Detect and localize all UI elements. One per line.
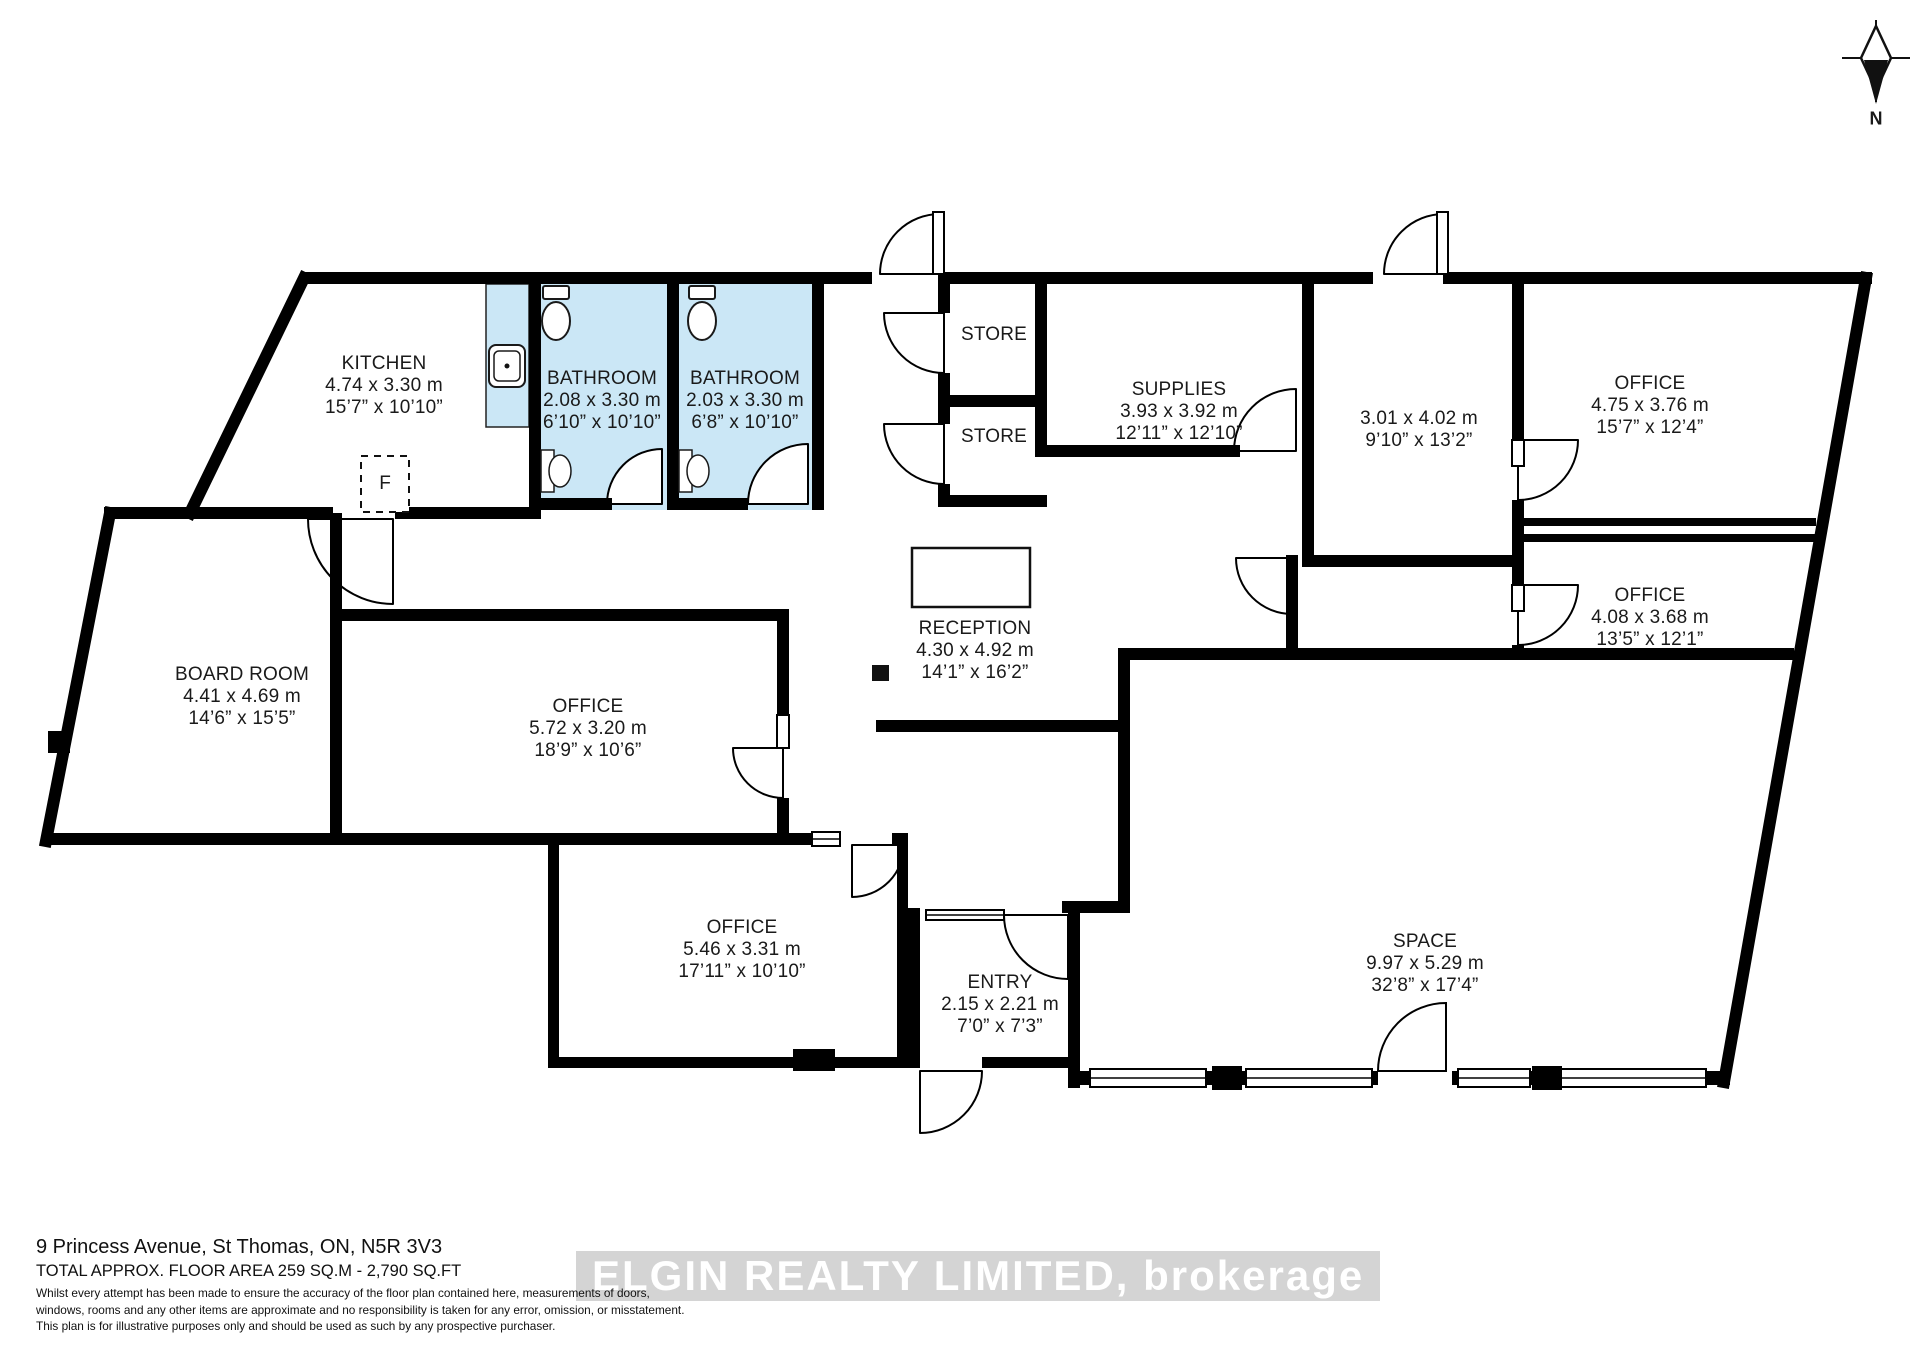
- wall: [1512, 272, 1524, 440]
- door-arc: [920, 1071, 982, 1133]
- room-dims-metric: 3.01 x 4.02 m: [1360, 408, 1478, 430]
- wall: [1724, 278, 1866, 1082]
- door-threshold: [793, 1049, 835, 1071]
- door-arc: [1518, 585, 1578, 645]
- door-arc: [852, 845, 904, 897]
- compass-icon: [1842, 20, 1910, 104]
- room-label-space: SPACE 9.97 x 5.29 m 32’8” x 17’4”: [1366, 931, 1484, 997]
- wall: [1068, 901, 1080, 1088]
- door-arc: [1384, 214, 1444, 274]
- door-arc: [1234, 389, 1296, 451]
- room-dims-metric: 4.74 x 3.30 m: [325, 375, 443, 397]
- disclaimer-line: windows, rooms and any other items are a…: [36, 1302, 684, 1319]
- wall: [46, 833, 824, 845]
- wall: [1443, 272, 1872, 284]
- wall: [548, 1057, 913, 1068]
- toilet-icon: [542, 302, 570, 340]
- wall: [190, 278, 304, 513]
- door-arc: [884, 424, 944, 484]
- door-threshold: [1532, 1066, 1562, 1090]
- wall: [1302, 555, 1512, 567]
- room-dims-metric: 4.41 x 4.69 m: [175, 686, 309, 708]
- wall: [48, 731, 70, 753]
- door-arc: [733, 748, 783, 798]
- door-arc: [1378, 1003, 1446, 1071]
- room-name: OFFICE: [1591, 585, 1709, 607]
- total-floor-area: TOTAL APPROX. FLOOR AREA 259 SQ.M - 2,79…: [36, 1262, 461, 1281]
- door-threshold: [1212, 1066, 1242, 1090]
- room-dims-imperial: 15’7” x 10’10”: [325, 397, 443, 419]
- room-dims-metric: 2.03 x 3.30 m: [686, 390, 804, 412]
- room-name: SPACE: [1366, 931, 1484, 953]
- wall: [667, 272, 679, 510]
- property-address: 9 Princess Avenue, St Thomas, ON, N5R 3V…: [36, 1236, 442, 1259]
- room-label-office-top-right: OFFICE 4.75 x 3.76 m 15’7” x 12’4”: [1591, 373, 1709, 439]
- room-label-store-1: STORE: [961, 324, 1027, 346]
- wall: [812, 272, 824, 510]
- room-label-bathroom-2: BATHROOM 2.03 x 3.30 m 6’8” x 10’10”: [686, 368, 804, 434]
- room-label-board-room: BOARD ROOM 4.41 x 4.69 m 14’6” x 15’5”: [175, 664, 309, 730]
- room-dims-imperial: 13’5” x 12’1”: [1591, 629, 1709, 651]
- room-label-office-right-2: OFFICE 4.08 x 3.68 m 13’5” x 12’1”: [1591, 585, 1709, 651]
- disclaimer-line: This plan is for illustrative purposes o…: [36, 1318, 684, 1335]
- wall: [1302, 272, 1314, 567]
- room-dims-imperial: 14’6” x 15’5”: [175, 708, 309, 730]
- door-arc: [880, 214, 940, 274]
- room-dims-imperial: 7’0” x 7’3”: [941, 1016, 1059, 1038]
- fridge-label: F: [379, 473, 391, 495]
- room-dims-metric: 2.08 x 3.30 m: [543, 390, 661, 412]
- wall: [876, 720, 1130, 732]
- room-dims-imperial: 15’7” x 12’4”: [1591, 417, 1709, 439]
- room-dims-imperial: 17’11” x 10’10”: [678, 961, 805, 983]
- wall: [336, 609, 789, 621]
- room-label-kitchen: KITCHEN 4.74 x 3.30 m 15’7” x 10’10”: [325, 353, 443, 419]
- compass-north-label: N: [1870, 109, 1883, 130]
- floor-plan-page: ELGIN REALTY LIMITED, brokerage: [0, 0, 1920, 1357]
- wall: [1118, 648, 1130, 913]
- room-dims-imperial: 6’10” x 10’10”: [543, 412, 661, 434]
- room-dims-imperial: 32’8” x 17’4”: [1366, 975, 1484, 997]
- wall: [938, 395, 1047, 407]
- room-dims-metric: 5.46 x 3.31 m: [678, 939, 805, 961]
- room-dims-metric: 3.93 x 3.92 m: [1115, 401, 1242, 423]
- door-arc: [1004, 915, 1068, 979]
- wall: [982, 1057, 1068, 1068]
- room-dims-metric: 4.30 x 4.92 m: [916, 640, 1034, 662]
- room-name: OFFICE: [678, 917, 805, 939]
- room-dims-metric: 2.15 x 2.21 m: [941, 994, 1059, 1016]
- wall: [1286, 555, 1298, 660]
- door-leaf: [777, 715, 789, 748]
- wall: [777, 798, 789, 845]
- wall: [897, 833, 908, 1068]
- room-name: OFFICE: [1591, 373, 1709, 395]
- wall: [186, 507, 333, 519]
- door-leaf: [1437, 212, 1448, 274]
- room-name: STORE: [961, 324, 1027, 346]
- kitchen-sink-drain: [505, 364, 510, 369]
- wall: [938, 495, 1047, 507]
- wall: [529, 498, 612, 510]
- room-name: BATHROOM: [686, 368, 804, 390]
- room-dims-imperial: 9’10” x 13’2”: [1360, 430, 1478, 452]
- brokerage-watermark: ELGIN REALTY LIMITED, brokerage: [576, 1251, 1380, 1301]
- compass-arrow: [1864, 60, 1888, 104]
- room-label-supplies: SUPPLIES 3.93 x 3.92 m 12’11” x 12’10”: [1115, 379, 1242, 445]
- sink-icon: [687, 455, 709, 487]
- door-arc: [884, 313, 944, 373]
- wall: [1512, 534, 1816, 542]
- toilet-icon: [543, 286, 569, 299]
- reception-desk: [912, 548, 1030, 607]
- room-dims-imperial: 12’11” x 12’10”: [1115, 423, 1242, 445]
- door-leaf: [1512, 440, 1524, 466]
- door-arc: [1518, 440, 1578, 500]
- room-name: BOARD ROOM: [175, 664, 309, 686]
- room-name: BATHROOM: [543, 368, 661, 390]
- wall: [104, 507, 196, 519]
- room-label-entry: ENTRY 2.15 x 2.21 m 7’0” x 7’3”: [941, 972, 1059, 1038]
- wall: [548, 833, 559, 1068]
- room-name: OFFICE: [529, 696, 647, 718]
- room-dims-metric: 9.97 x 5.29 m: [1366, 953, 1484, 975]
- door-arc: [1236, 558, 1292, 614]
- door-leaf: [933, 212, 944, 274]
- wall: [1035, 272, 1047, 457]
- sink-icon: [549, 455, 571, 487]
- room-dims-metric: 4.75 x 3.76 m: [1591, 395, 1709, 417]
- room-name: SUPPLIES: [1115, 379, 1242, 401]
- room-dims-metric: 4.08 x 3.68 m: [1591, 607, 1709, 629]
- door-arc: [308, 519, 393, 604]
- wall: [1512, 645, 1524, 660]
- wall: [529, 272, 541, 510]
- room-dims-metric: 5.72 x 3.20 m: [529, 718, 647, 740]
- disclaimer-line: Whilst every attempt has been made to en…: [36, 1285, 684, 1302]
- wall: [1512, 500, 1524, 585]
- room-label-store-2: STORE: [961, 426, 1027, 448]
- room-name: ENTRY: [941, 972, 1059, 994]
- wall: [777, 609, 789, 715]
- room-label-unnamed-room: 3.01 x 4.02 m 9’10” x 13’2”: [1360, 408, 1478, 452]
- wall: [667, 498, 748, 510]
- wall: [1512, 518, 1816, 526]
- room-label-office-center: OFFICE 5.72 x 3.20 m 18’9” x 10’6”: [529, 696, 647, 762]
- door-leaf: [1512, 585, 1524, 611]
- room-dims-imperial: 14’1” x 16’2”: [916, 662, 1034, 684]
- room-dims-imperial: 18’9” x 10’6”: [529, 740, 647, 762]
- wall: [330, 513, 342, 843]
- wall: [46, 513, 110, 841]
- wall: [938, 272, 950, 313]
- toilet-icon: [688, 302, 716, 340]
- room-name: RECEPTION: [916, 618, 1034, 640]
- room-name: KITCHEN: [325, 353, 443, 375]
- wall: [395, 507, 541, 519]
- toilet-icon: [689, 286, 715, 299]
- room-label-reception: RECEPTION 4.30 x 4.92 m 14’1” x 16’2”: [916, 618, 1034, 684]
- room-dims-imperial: 6’8” x 10’10”: [686, 412, 804, 434]
- room-label-bathroom-1: BATHROOM 2.08 x 3.30 m 6’10” x 10’10”: [543, 368, 661, 434]
- wall: [1035, 445, 1240, 457]
- wall: [908, 908, 920, 1068]
- room-name: STORE: [961, 426, 1027, 448]
- disclaimer: Whilst every attempt has been made to en…: [36, 1285, 684, 1335]
- room-label-office-bottom: OFFICE 5.46 x 3.31 m 17’11” x 10’10”: [678, 917, 805, 983]
- structural-column: [872, 665, 889, 681]
- wall: [304, 272, 872, 284]
